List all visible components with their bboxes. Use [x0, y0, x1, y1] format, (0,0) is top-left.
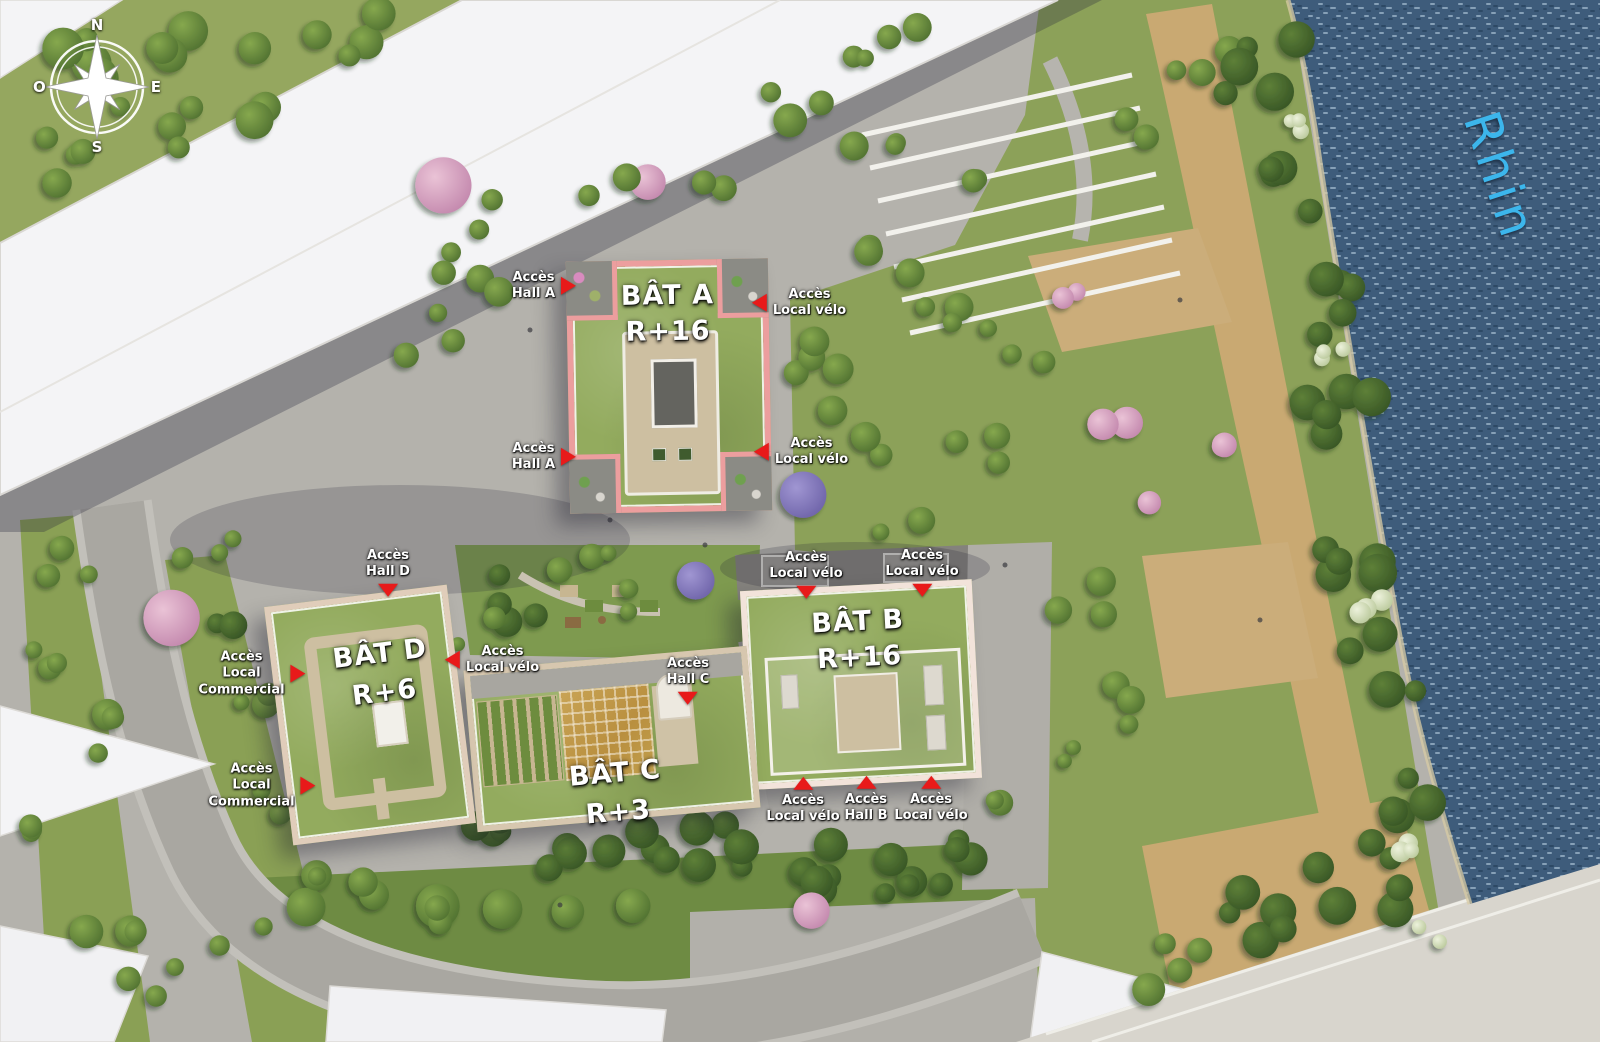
tree	[984, 423, 1010, 449]
roof-planter	[652, 448, 666, 461]
tree	[429, 304, 447, 322]
tree	[483, 889, 523, 929]
roof-courtyard	[622, 330, 720, 496]
tree	[394, 343, 419, 368]
tree	[1409, 784, 1446, 821]
tree	[415, 157, 471, 213]
tree	[578, 185, 599, 206]
tree	[653, 846, 679, 872]
tree	[854, 237, 883, 266]
tree	[1278, 21, 1314, 57]
tree	[555, 837, 587, 869]
tree	[441, 242, 461, 262]
tree	[180, 96, 203, 119]
tree	[524, 603, 548, 627]
tree	[761, 82, 781, 102]
tree	[211, 544, 228, 561]
tree	[1298, 199, 1323, 224]
tree	[303, 20, 332, 49]
building-name: BÂT A	[621, 281, 715, 310]
tree	[37, 564, 60, 587]
tree	[255, 917, 273, 935]
tree	[601, 545, 617, 561]
tree	[944, 837, 969, 862]
tree	[125, 920, 147, 942]
tree	[1189, 59, 1216, 86]
tree	[943, 313, 962, 332]
compass-south: S	[92, 138, 103, 156]
tree	[620, 603, 637, 620]
tree	[442, 329, 465, 352]
tree	[898, 874, 919, 895]
tree	[1087, 409, 1118, 440]
tree	[857, 50, 874, 67]
tree	[1258, 157, 1283, 182]
tree	[877, 25, 901, 49]
tree	[625, 815, 659, 849]
roof-element	[924, 665, 945, 706]
tree	[19, 814, 42, 837]
site-plan-canvas: BÂT A R+16 BÂT B R+16 BÂT C R+3 BÂT	[0, 0, 1600, 1042]
tree	[1132, 973, 1165, 1006]
tree	[579, 544, 604, 569]
tree	[1359, 554, 1398, 593]
tree	[1352, 378, 1391, 417]
tree	[823, 354, 854, 385]
tree	[980, 320, 997, 337]
tree	[809, 91, 834, 116]
tree	[800, 327, 830, 357]
tree	[1270, 916, 1297, 943]
tree	[1386, 874, 1413, 901]
tree	[692, 170, 716, 194]
tree	[1115, 107, 1139, 131]
compass-west: O	[33, 78, 46, 96]
tree	[1318, 887, 1356, 925]
building-bat-a[interactable]: BÂT A R+16	[566, 258, 772, 513]
tree	[483, 607, 505, 629]
roof-plan-outline	[765, 647, 966, 775]
tree	[225, 530, 242, 547]
building-bat-b[interactable]: BÂT B R+16	[740, 579, 982, 790]
tree	[339, 44, 361, 66]
tree	[986, 791, 1004, 809]
tree	[1256, 73, 1294, 111]
tree	[348, 867, 377, 896]
tree	[1087, 567, 1116, 596]
tree	[146, 985, 167, 1006]
tree	[876, 883, 896, 903]
tree	[1307, 322, 1332, 347]
building-bat-c[interactable]: BÂT C R+3	[463, 646, 760, 832]
compass-star-icon	[37, 27, 157, 147]
tree	[236, 101, 274, 139]
tree	[469, 220, 489, 240]
tree	[851, 422, 881, 452]
tree	[1138, 491, 1161, 514]
roof-patio	[833, 672, 902, 753]
tree	[930, 873, 953, 896]
patio-notch	[566, 261, 618, 321]
compass-rose: N E S O	[37, 20, 157, 154]
patio-notch	[569, 454, 621, 514]
tree	[801, 866, 833, 898]
roof-element	[926, 714, 947, 751]
tree	[166, 958, 184, 976]
patio-notch	[717, 258, 769, 318]
tree	[239, 32, 271, 64]
tree	[724, 829, 759, 864]
tree	[1052, 287, 1074, 309]
tree	[916, 297, 935, 316]
tree	[682, 848, 716, 882]
roof-pergola	[559, 683, 656, 780]
tree	[1379, 797, 1408, 826]
patio-notch	[720, 451, 772, 511]
tree	[1398, 768, 1419, 789]
tree	[908, 507, 935, 534]
tree	[1058, 754, 1072, 768]
building-bat-d[interactable]: BÂT D R+6	[264, 585, 476, 846]
tree	[1167, 958, 1192, 983]
tree	[482, 189, 503, 210]
tree	[220, 611, 248, 639]
tree	[814, 828, 848, 862]
tree	[172, 547, 193, 568]
tree	[886, 136, 905, 155]
tree	[840, 132, 869, 161]
tree	[47, 653, 67, 673]
roof-planter	[678, 447, 692, 460]
tree	[793, 892, 829, 928]
tree	[1316, 344, 1331, 359]
tree	[425, 895, 450, 920]
tree	[680, 811, 715, 846]
tree	[308, 867, 326, 885]
tree	[432, 261, 456, 285]
compass-east: E	[151, 78, 161, 96]
tree	[818, 396, 848, 426]
tree	[70, 915, 104, 949]
tree	[988, 452, 1010, 474]
tree	[1120, 715, 1139, 734]
tree	[773, 103, 807, 137]
tree	[780, 472, 826, 518]
tree	[1303, 852, 1334, 883]
tree	[1066, 740, 1081, 755]
roof-element	[780, 675, 799, 709]
tree	[42, 168, 71, 197]
tree	[946, 430, 969, 453]
tree	[158, 112, 186, 140]
tree	[677, 562, 715, 600]
tree	[50, 536, 75, 561]
tree	[873, 524, 890, 541]
tree	[287, 888, 326, 927]
tree	[1433, 934, 1447, 948]
tree	[547, 557, 573, 583]
tree	[1312, 400, 1341, 429]
tree	[1033, 351, 1056, 374]
tree	[1212, 433, 1237, 458]
tree	[489, 564, 510, 585]
tree	[234, 694, 250, 710]
tree	[484, 277, 514, 307]
tree	[903, 13, 932, 42]
tree	[592, 835, 625, 868]
tree	[616, 889, 651, 924]
tree	[80, 566, 98, 584]
tree	[1309, 262, 1344, 297]
tree	[1117, 686, 1145, 714]
tree	[102, 706, 124, 728]
tree	[253, 781, 271, 799]
tree	[168, 136, 190, 158]
tree	[1134, 124, 1159, 149]
tree	[1167, 60, 1187, 80]
tree	[1045, 596, 1072, 623]
tree	[1412, 920, 1426, 934]
tree	[1363, 617, 1398, 652]
tree	[1403, 843, 1419, 859]
roof-core	[651, 359, 697, 429]
compass-north: N	[91, 16, 104, 34]
tree	[116, 967, 140, 991]
scene-svg	[0, 0, 1600, 1042]
tree	[143, 590, 199, 646]
tree	[962, 169, 986, 193]
tree	[1292, 113, 1306, 127]
tree	[1358, 829, 1386, 857]
tree	[1369, 671, 1406, 708]
tree	[1220, 48, 1258, 86]
roof-arch	[654, 672, 692, 721]
building-name: BÂT B	[811, 606, 905, 638]
tree	[1329, 299, 1357, 327]
roof-garden-beds	[476, 694, 564, 787]
tree	[619, 579, 638, 598]
tree	[1091, 601, 1117, 627]
tree	[1350, 602, 1372, 624]
tree	[25, 641, 42, 658]
tree	[1405, 680, 1426, 701]
tree	[552, 895, 585, 928]
tree	[1336, 342, 1351, 357]
tree	[875, 843, 908, 876]
tree	[89, 743, 108, 762]
tree	[1155, 933, 1176, 954]
tree	[1187, 938, 1212, 963]
tree	[1225, 875, 1260, 910]
tree	[1337, 637, 1364, 664]
roof-skylight	[372, 699, 409, 747]
tree	[1002, 344, 1021, 363]
tree	[1326, 548, 1353, 575]
tree	[613, 163, 641, 191]
tree	[896, 258, 925, 287]
tree	[209, 935, 229, 955]
